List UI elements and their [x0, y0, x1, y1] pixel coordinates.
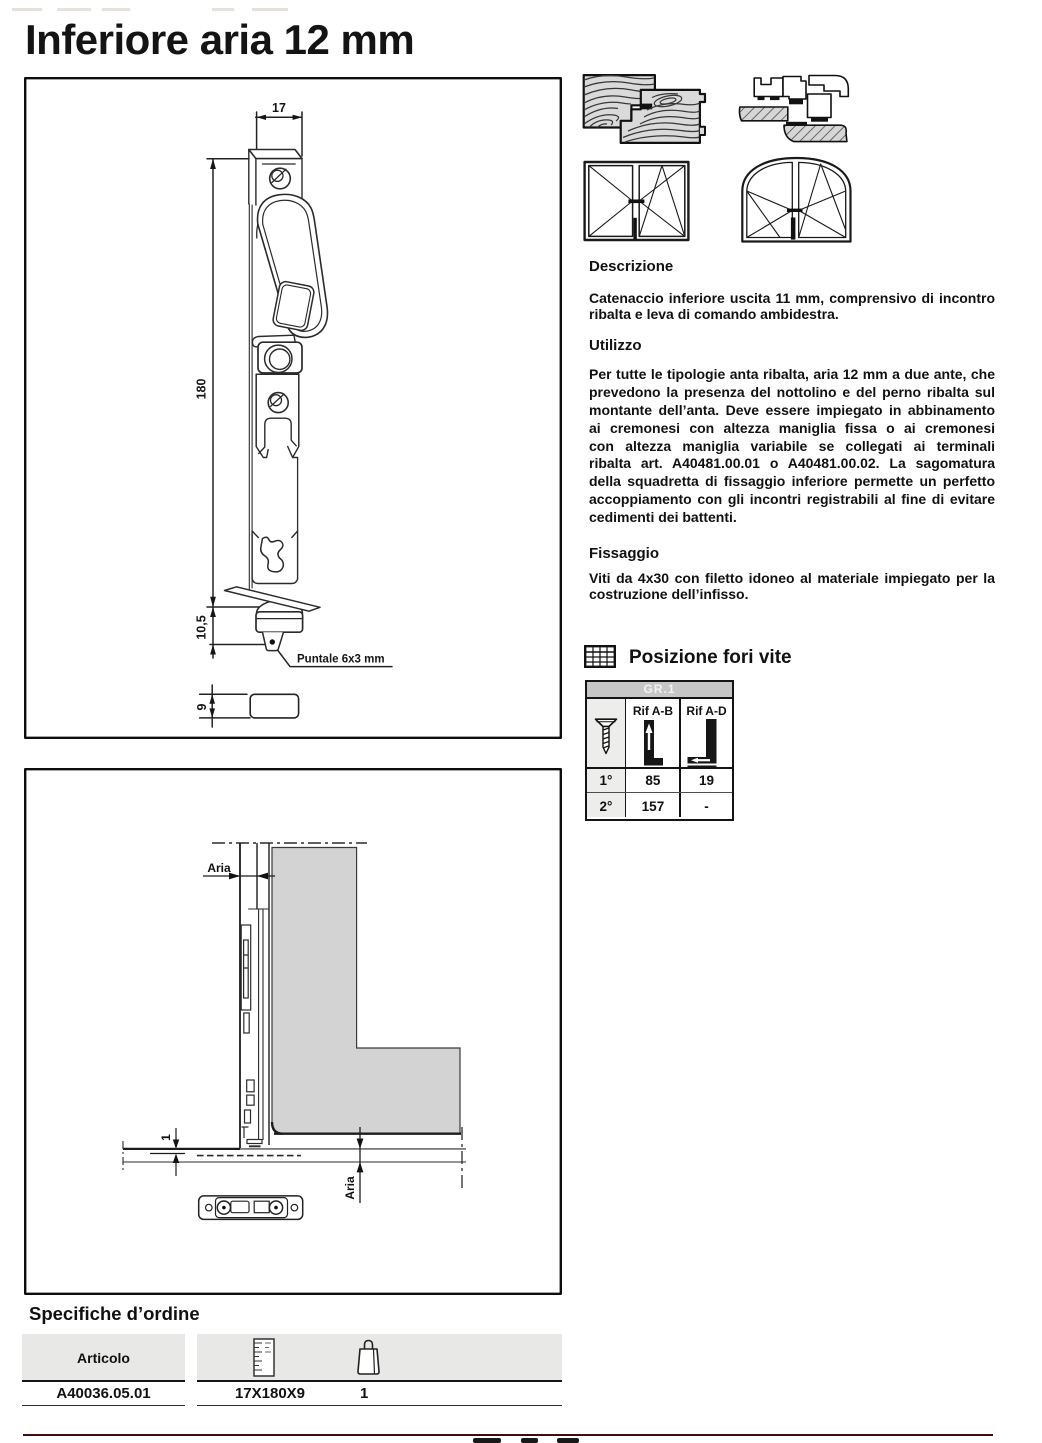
svg-text:180: 180 [195, 379, 209, 400]
svg-text:9: 9 [195, 703, 209, 710]
svg-text:17: 17 [272, 101, 286, 115]
svg-text:Aria: Aria [207, 861, 231, 875]
svg-text:Aria: Aria [343, 1176, 357, 1200]
svg-text:10,5: 10,5 [195, 615, 209, 639]
svg-text:1: 1 [159, 1134, 173, 1141]
svg-text:Puntale 6x3 mm: Puntale 6x3 mm [297, 654, 385, 666]
